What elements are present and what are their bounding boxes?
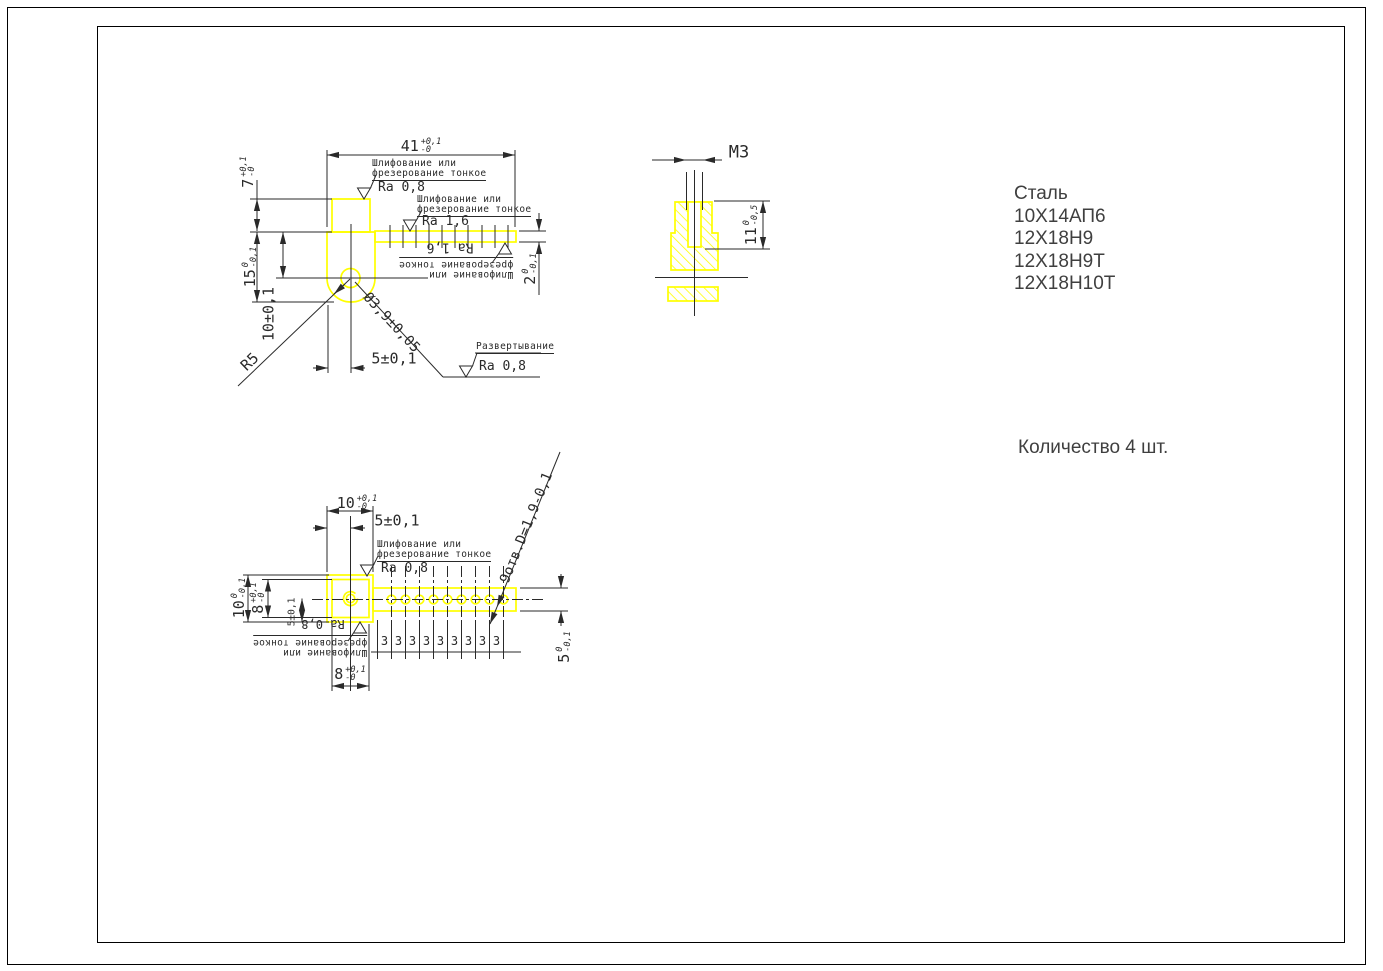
surface-note-top: Шлифование или фрезерование тонкое <box>372 159 486 181</box>
reaming-note: Развертывание <box>476 342 554 354</box>
ra-value: Ra 0,8 <box>378 180 425 195</box>
dim-5-top: 5±0,1 <box>374 514 419 529</box>
dim-5-right: 5 0-0,1 <box>556 631 572 663</box>
spacing-dim: 3 <box>479 634 486 648</box>
surface-note-bar-bottom: Шлифование или фрезерование тонкое <box>399 257 513 279</box>
ra-value: Ra 1,6 <box>422 214 469 229</box>
dim-41: 41 +0,1-0 <box>401 138 442 154</box>
surface-note-topview-bottom: Шлифование или фрезерование тонкое <box>253 635 367 657</box>
material-grade: 12Х18Н9Т <box>1014 251 1115 274</box>
dim-10-front: 10±0,1 <box>262 287 277 341</box>
dim-15: 15 0-0,1 <box>242 247 258 288</box>
materials-list: Сталь 10Х14АП6 12Х18Н9 12Х18Н9Т 12Х18Н10… <box>1014 183 1115 296</box>
annotation-layer: 41 +0,1-0 7 +0,1-0 15 0-0,1 10±0,1 5±0,1… <box>0 0 1383 971</box>
dim-10-left: 10 0-0,1 <box>231 578 247 619</box>
spacing-dim: 3 <box>493 634 500 648</box>
spacing-dim: 3 <box>409 634 416 648</box>
spacing-dim: 3 <box>465 634 472 648</box>
drawing-sheet: 41 +0,1-0 7 +0,1-0 15 0-0,1 10±0,1 5±0,1… <box>0 0 1383 971</box>
ra-value: Ra 0,8 <box>479 359 526 374</box>
spacing-dim: 3 <box>437 634 444 648</box>
dim-8-left: 8 +0,1-0 <box>250 582 266 614</box>
dim-m3: M3 <box>729 146 749 161</box>
dim-10-top: 10 +0,1-0 <box>337 495 378 511</box>
dim-11: 11 0-0,5 <box>743 205 759 246</box>
spacing-dim: 3 <box>423 634 430 648</box>
ra-value: Ra 0,8 <box>381 561 428 576</box>
surface-note-topview: Шлифование или фрезерование тонкое <box>377 540 491 562</box>
dim-7: 7 +0,1-0 <box>240 156 256 188</box>
ra-value-flipped: Ra 0,8 <box>301 617 344 631</box>
material-grade: 10Х14АП6 <box>1014 206 1115 229</box>
spacing-dim: 3 <box>451 634 458 648</box>
material-title: Сталь <box>1014 183 1115 206</box>
spacing-dim: 3 <box>381 634 388 648</box>
dim-8-bottom: 8 +0,1-0 <box>334 666 366 682</box>
dim-hole-dia: Ø3,9±0,05 <box>360 290 423 356</box>
dim-5-small: 5±0,1 <box>285 598 300 627</box>
spacing-dim: 3 <box>395 634 402 648</box>
dim-holes-note: 9отв.D=1,9-0,1 <box>498 470 556 585</box>
dim-2: 2 0-0,1 <box>522 253 538 285</box>
quantity-note: Количество 4 шт. <box>1018 437 1168 460</box>
dim-r5: R5 <box>238 350 261 373</box>
ra-value-flipped: Ra 1,6 <box>427 240 474 255</box>
material-grade: 12Х18Н9 <box>1014 228 1115 251</box>
material-grade: 12Х18Н10Т <box>1014 273 1115 296</box>
